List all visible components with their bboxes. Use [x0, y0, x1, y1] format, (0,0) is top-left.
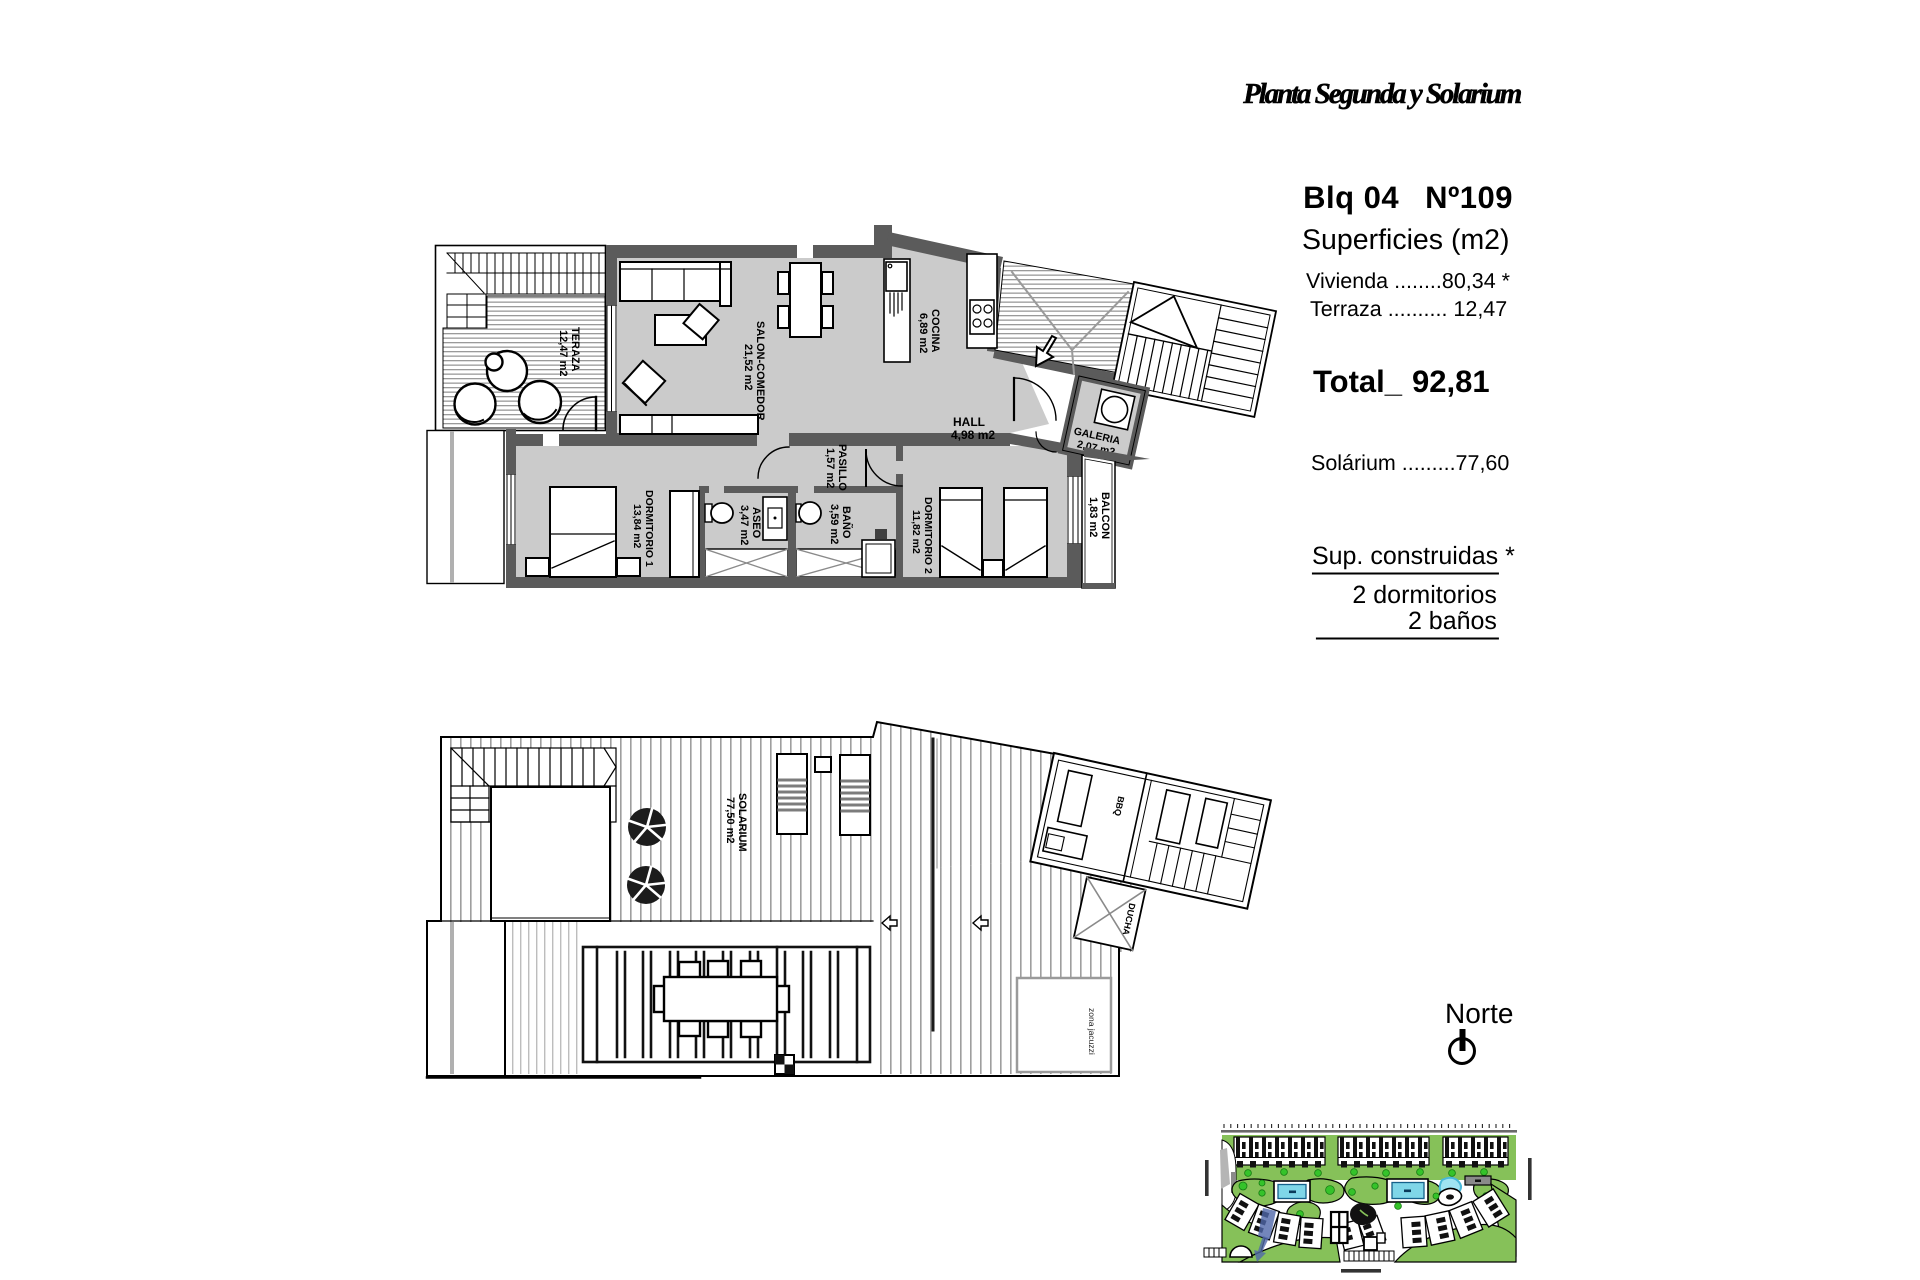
svg-text:Sup. construidas *: Sup. construidas *	[1312, 542, 1515, 570]
svg-text:1,57 m2: 1,57 m2	[824, 448, 836, 488]
svg-text:21,52 m2: 21,52 m2	[742, 344, 754, 390]
svg-text:6,89 m2: 6,89 m2	[917, 313, 929, 353]
svg-text:3,59 m2: 3,59 m2	[828, 504, 840, 544]
svg-text:SALON-COMEDOR: SALON-COMEDOR	[754, 321, 766, 421]
svg-text:DORMITORIO 1: DORMITORIO 1	[643, 490, 655, 567]
svg-text:Nº109: Nº109	[1425, 180, 1513, 215]
svg-text:Blq 04: Blq 04	[1303, 180, 1399, 215]
svg-text:BAÑO: BAÑO	[840, 506, 853, 539]
svg-text:11,82 m2: 11,82 m2	[910, 510, 922, 554]
svg-text:Planta Segunda y Solarium: Planta Segunda y Solarium	[1242, 78, 1522, 110]
svg-text:COCINA: COCINA	[929, 309, 941, 352]
svg-text:SOLARIUM: SOLARIUM	[736, 793, 748, 852]
svg-text:4,98 m2: 4,98 m2	[951, 428, 995, 442]
svg-text:TERAZA: TERAZA	[569, 327, 581, 372]
svg-text:12,47 m2: 12,47 m2	[557, 330, 569, 376]
svg-text:HALL: HALL	[953, 415, 985, 429]
svg-text:DORMITORIO 2: DORMITORIO 2	[922, 497, 934, 574]
svg-text:2 dormitorios: 2 dormitorios	[1352, 581, 1497, 609]
svg-text:92,81: 92,81	[1412, 364, 1490, 399]
svg-text:Vivienda ........80,34 *: Vivienda ........80,34 *	[1306, 269, 1511, 293]
svg-text:Terraza .......... 12,47: Terraza .......... 12,47	[1310, 297, 1507, 321]
svg-text:13,84 m2: 13,84 m2	[631, 504, 643, 549]
svg-text:77,50 m2: 77,50 m2	[724, 797, 736, 843]
svg-text:PASILLO: PASILLO	[836, 444, 848, 491]
svg-text:2 baños: 2 baños	[1408, 607, 1497, 635]
svg-text:Norte: Norte	[1445, 998, 1513, 1029]
svg-text:BALCON: BALCON	[1099, 492, 1111, 539]
svg-text:ASEO: ASEO	[750, 507, 762, 539]
svg-text:1,83 m2: 1,83 m2	[1087, 497, 1099, 537]
svg-text:Solárium .........77,60: Solárium .........77,60	[1311, 451, 1509, 475]
svg-text:Total_: Total_	[1313, 364, 1403, 399]
svg-text:Superficies (m2): Superficies (m2)	[1302, 224, 1509, 256]
svg-text:3,47 m2: 3,47 m2	[738, 505, 750, 545]
svg-text:zona jacuzzi: zona jacuzzi	[1087, 1008, 1097, 1055]
